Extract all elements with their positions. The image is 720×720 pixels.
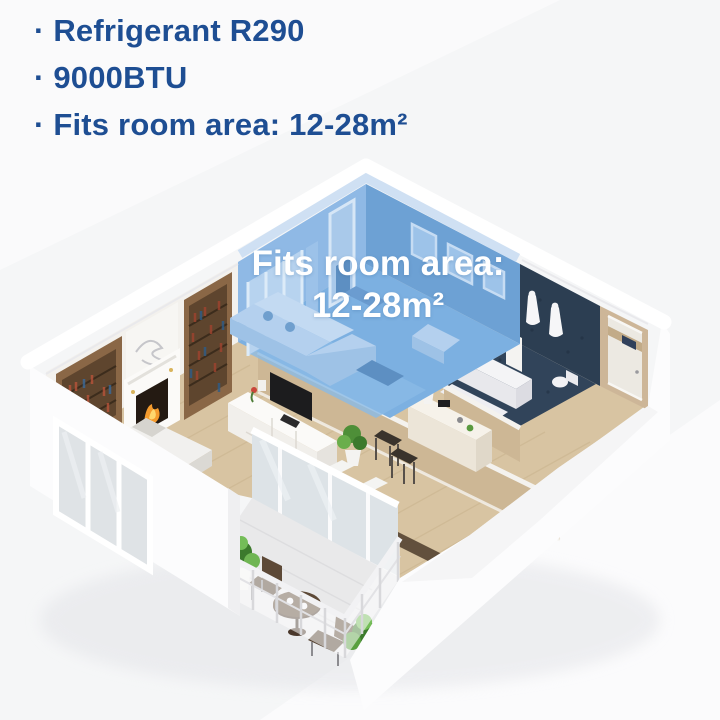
toilet <box>552 377 568 388</box>
product-infographic: · Refrigerant R290 · 9000BTU · Fits room… <box>0 0 720 720</box>
room-area-label: Fits room area: 12-28m² <box>168 243 588 327</box>
spec-item-refrigerant: · Refrigerant R290 <box>34 14 408 48</box>
spec-item-btu: · 9000BTU <box>34 61 408 95</box>
spec-item-room-area: · Fits room area: 12-28m² <box>34 108 408 142</box>
room-area-label-line1: Fits room area: <box>168 243 588 285</box>
spec-list: · Refrigerant R290 · 9000BTU · Fits room… <box>34 14 408 155</box>
room-area-label-line2: 12-28m² <box>168 285 588 327</box>
